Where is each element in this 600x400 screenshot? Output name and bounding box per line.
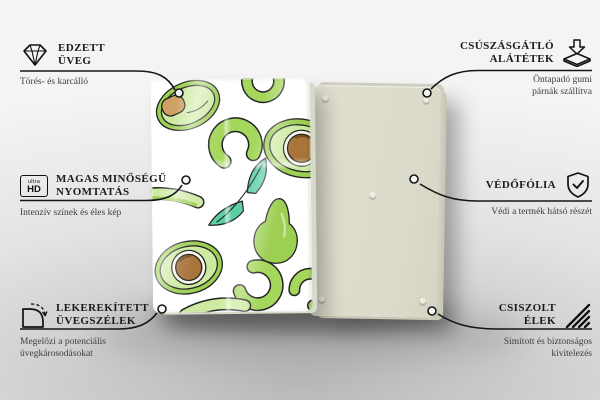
anti-slip-pad xyxy=(369,192,376,199)
feature-title: LEKEREKÍTETT ÜVEGSZÉLEK xyxy=(56,302,149,328)
feature-title: VÉDŐFÓLIA xyxy=(486,179,556,192)
feature-callout-rounded-edges: LEKEREKÍTETT ÜVEGSZÉLEK Megelőzi a poten… xyxy=(20,300,170,360)
product-feature-showcase: EDZETT ÜVEG Törés- és karcálló ultra HD … xyxy=(0,0,600,400)
feature-subtitle: Megelőzi a potenciális üvegkárosodásokat xyxy=(20,337,130,360)
feature-callout-protective-film: VÉDŐFÓLIA Védi a termék hátsó részét xyxy=(432,170,592,219)
glass-reflection-overlay xyxy=(151,78,312,313)
anti-slip-pad xyxy=(423,97,430,104)
feature-callout-high-quality-print: ultra HD MAGAS MINŐSÉGŰ NYOMTATÁS Intenz… xyxy=(20,171,170,220)
anti-slip-pad xyxy=(419,298,426,305)
feature-subtitle: Öntapadó gumi párnák szállítva xyxy=(508,75,592,98)
shield-check-icon xyxy=(564,171,592,199)
feature-callout-tempered-glass: EDZETT ÜVEG Törés- és karcálló xyxy=(20,40,170,89)
anti-slip-pad xyxy=(318,296,325,303)
ultra-hd-icon: ultra HD xyxy=(20,175,48,197)
feature-subtitle: Intenzív színek és éles kép xyxy=(20,208,170,220)
feature-subtitle: Védi a termék hátsó részét xyxy=(432,207,592,219)
polished-edge-icon xyxy=(564,302,592,328)
rounded-corner-icon xyxy=(20,301,48,329)
feature-title: CSÚSZÁSGÁTLÓ ALÁTÉTEK xyxy=(460,40,554,66)
feature-subtitle: Simított és biztonságos kivitelezés xyxy=(478,337,592,360)
feature-title: MAGAS MINŐSÉGŰ NYOMTATÁS xyxy=(56,173,166,199)
diamond-icon xyxy=(20,42,50,68)
feature-title: EDZETT ÜVEG xyxy=(58,42,105,68)
product-back-panel xyxy=(309,85,441,318)
feature-callout-polished-edges: CSISZOLT ÉLEK Simított és biztonságos ki… xyxy=(432,300,592,360)
feature-title: CSISZOLT ÉLEK xyxy=(499,302,556,328)
feature-subtitle: Törés- és karcálló xyxy=(20,77,170,89)
feature-callout-anti-slip-pads: CSÚSZÁSGÁTLÓ ALÁTÉTEK Öntapadó gumi párn… xyxy=(432,38,592,98)
product-front-panel xyxy=(151,78,312,313)
anti-slip-pad xyxy=(322,95,329,102)
anti-slip-pad-icon xyxy=(562,39,592,67)
